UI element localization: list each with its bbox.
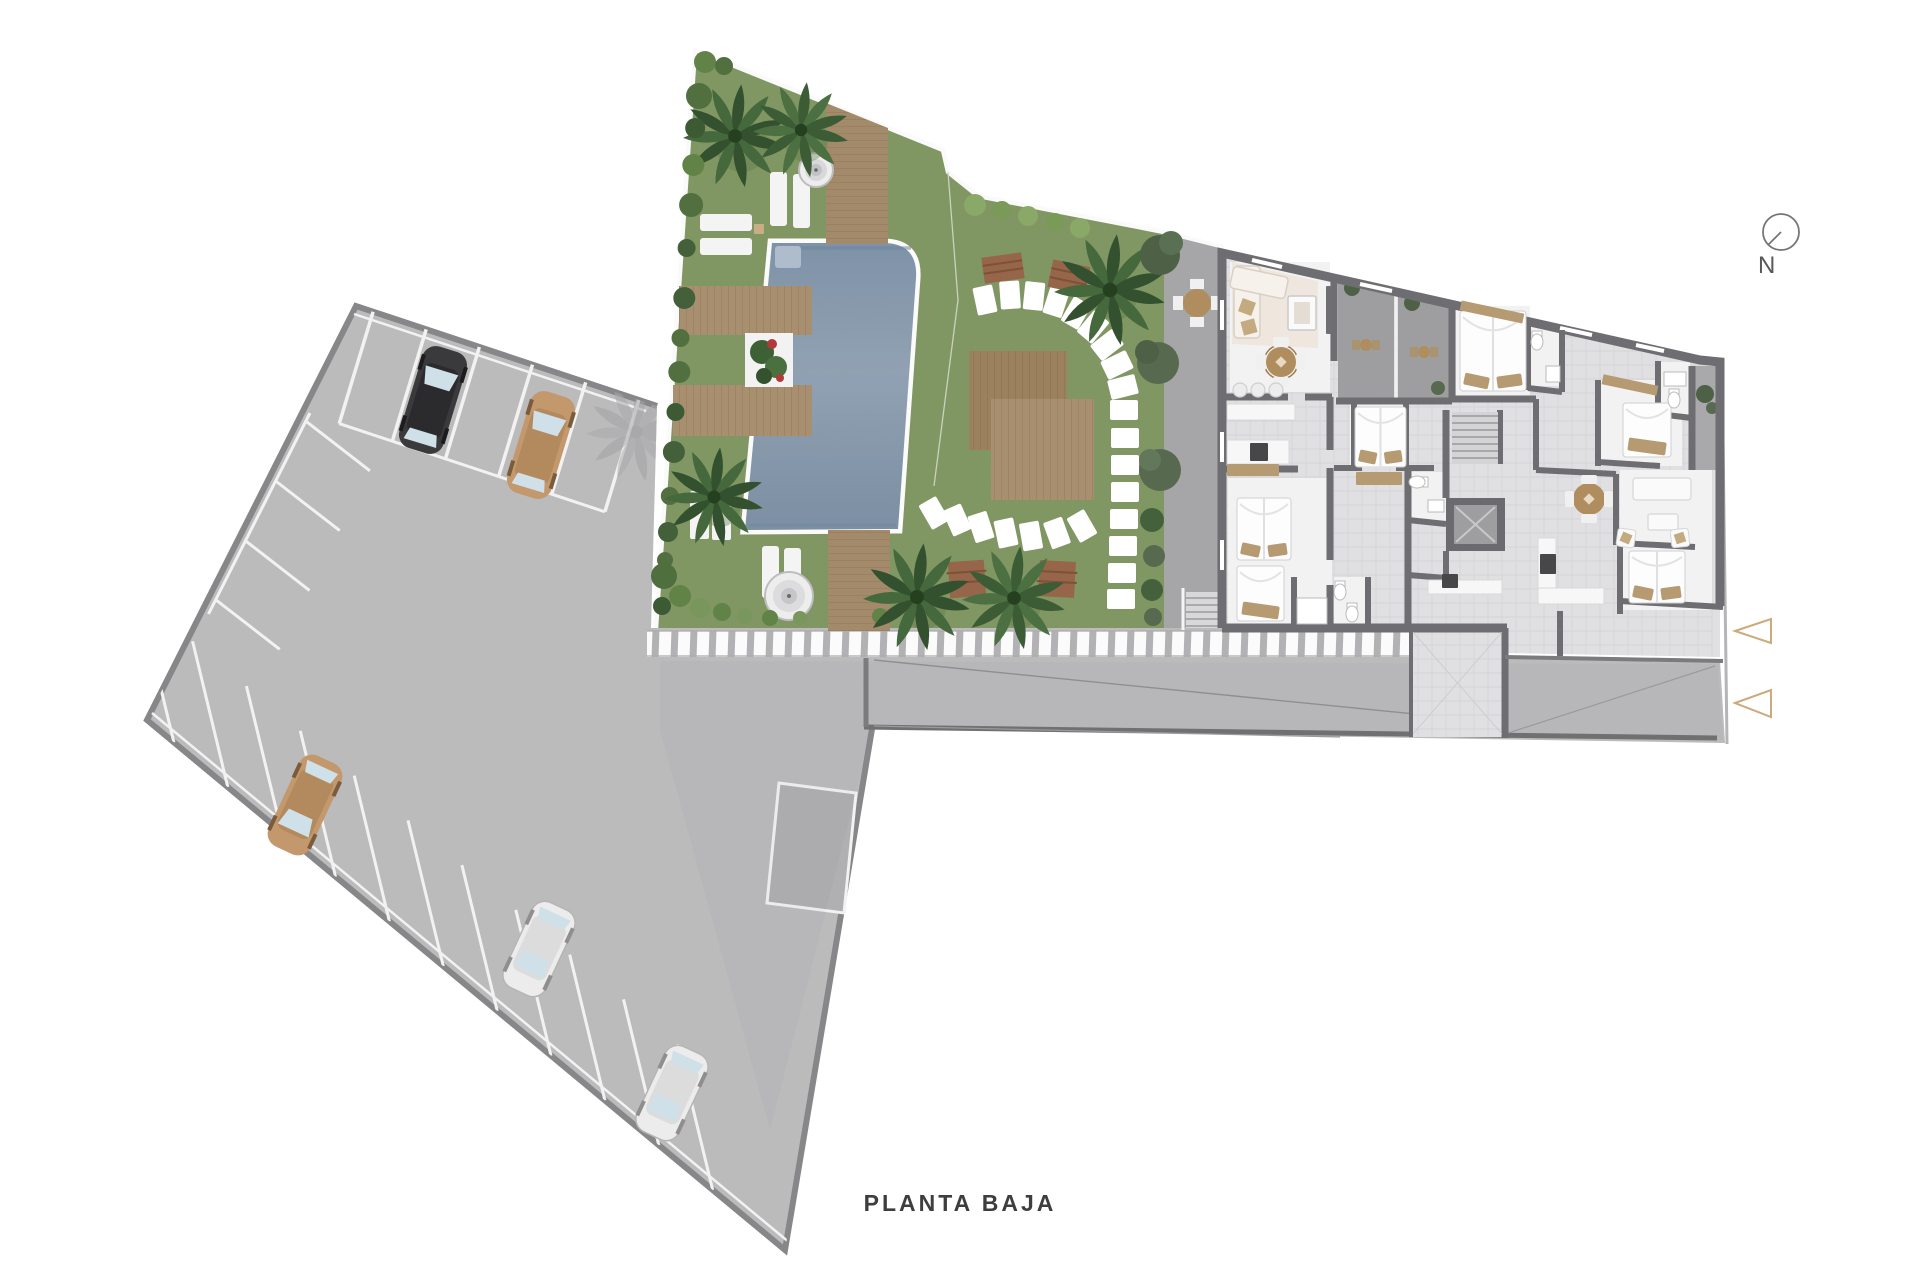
- svg-text:PLANTA BAJA: PLANTA BAJA: [864, 1190, 1057, 1216]
- svg-text:N: N: [1758, 252, 1775, 279]
